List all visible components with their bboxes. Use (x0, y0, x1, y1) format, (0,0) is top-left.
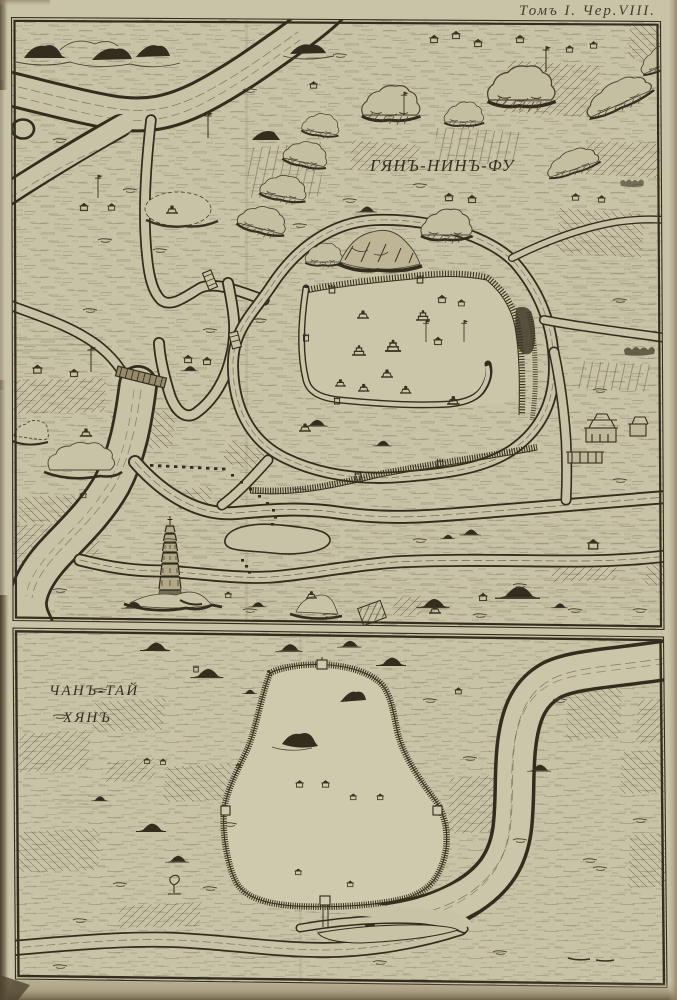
svg-text:Томъ I. Чер.VIII.: Томъ I. Чер.VIII. (519, 3, 656, 19)
svg-text:ХЯНЪ: ХЯНЪ (62, 710, 112, 726)
svg-text:ЧАНЪ-ТАЙ: ЧАНЪ-ТАЙ (49, 682, 139, 699)
svg-text:ГЯНЪ-НИНЪ-ФУ: ГЯНЪ-НИНЪ-ФУ (369, 156, 516, 175)
